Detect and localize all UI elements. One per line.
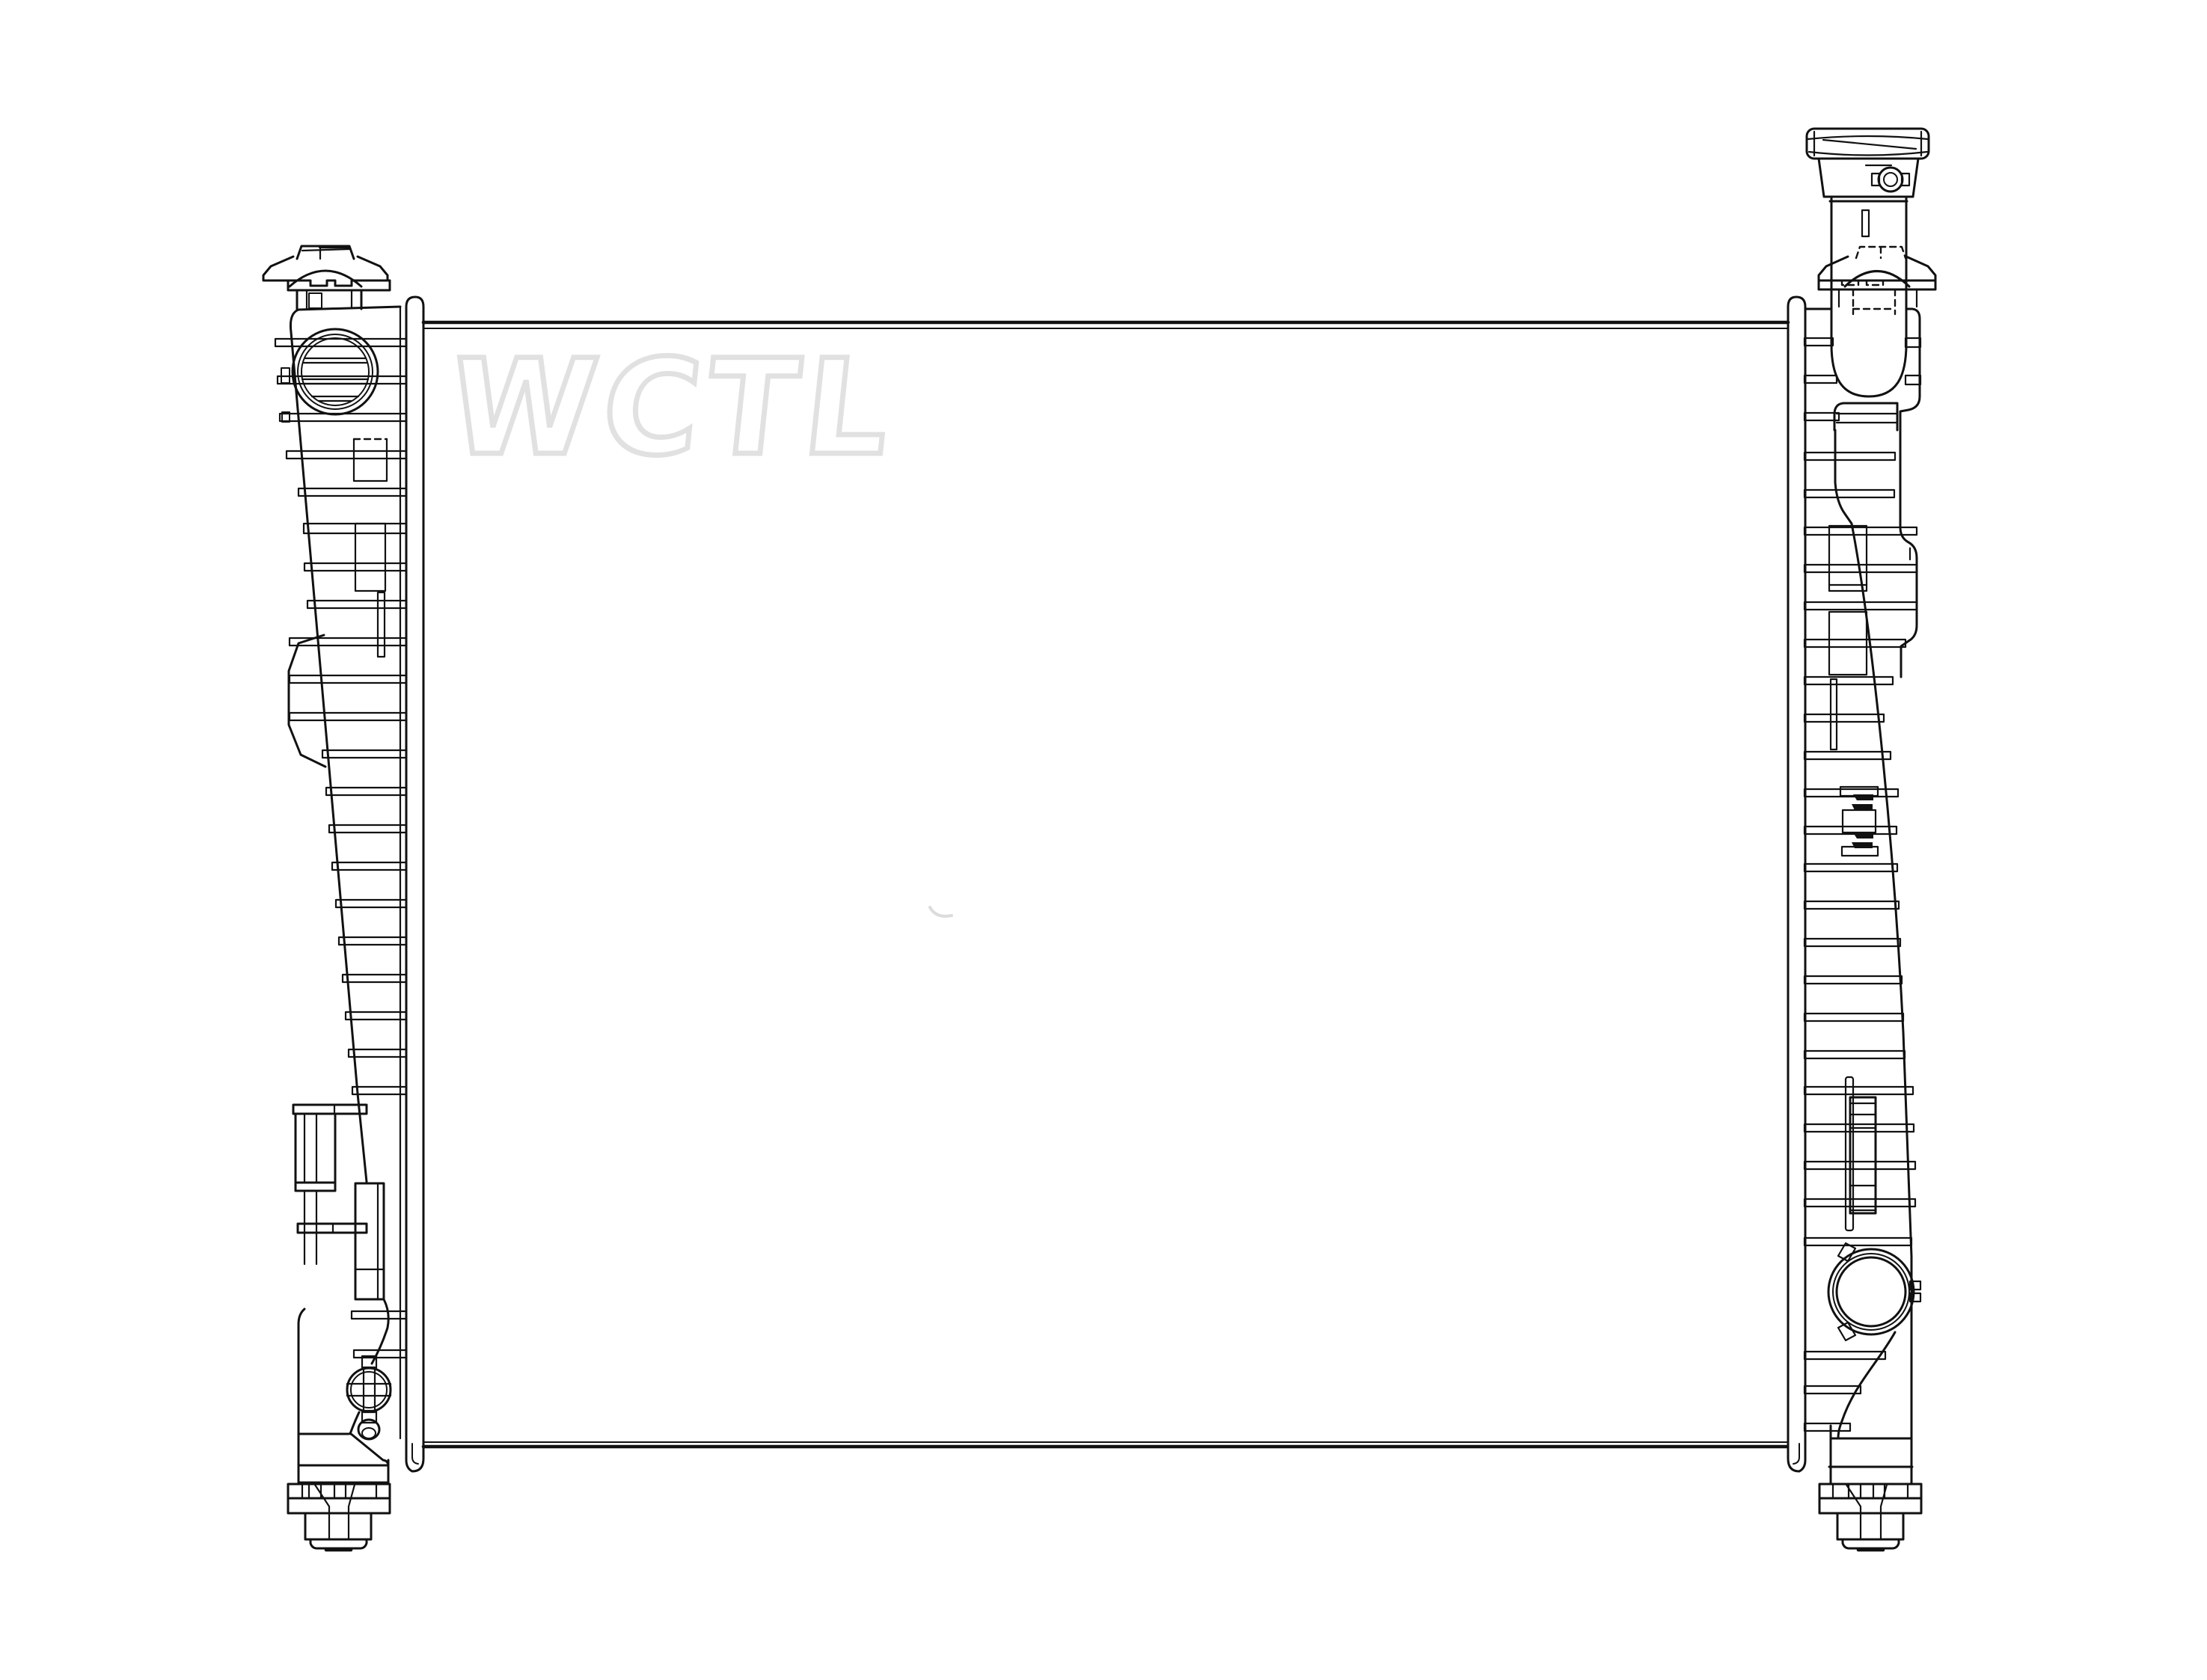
faint-artifact [930, 907, 952, 916]
tank-rib [1805, 453, 1895, 460]
tank-rib [1805, 1386, 1861, 1394]
bracket-wing-right [1906, 257, 1935, 280]
neck-slot [1862, 210, 1869, 236]
tank-rib [1805, 939, 1900, 946]
tank-rib [1805, 1238, 1911, 1245]
bracket-wing-right [358, 257, 388, 280]
support-rod [1846, 1077, 1876, 1230]
bracket-lower-hidden [1853, 289, 1895, 314]
right-tank-rib-nubs [1906, 338, 1920, 384]
left-tank-flange-strip [406, 297, 423, 1471]
left-mounting-foot [288, 1484, 390, 1550]
tank-rib [1805, 1352, 1885, 1359]
bracket-wing-left [1819, 257, 1848, 280]
tank-rib [339, 937, 406, 945]
right-mounting-foot [1819, 1484, 1921, 1550]
tank-rib [326, 788, 406, 795]
tank-rib [332, 862, 406, 870]
neck-collar [1834, 403, 1897, 430]
tank-rib [1805, 1162, 1915, 1169]
tank-rib [322, 750, 406, 758]
tank-rib [352, 1087, 406, 1094]
watermark: WCTL [443, 331, 952, 916]
tank-rib [1906, 375, 1920, 384]
bracket-base-notched [288, 280, 390, 286]
tank-rib [1805, 1087, 1913, 1094]
tank-rib [1805, 752, 1891, 759]
left-tank-face-lower [372, 1299, 388, 1364]
right-face-box-2 [1829, 612, 1867, 675]
left-inlet-port [293, 329, 378, 414]
tank-rib [1805, 1199, 1915, 1207]
tank-rib [346, 1012, 406, 1020]
bracket-pin-hidden [1856, 247, 1906, 258]
petcock-hbar [347, 1384, 391, 1396]
tank-rib [1805, 640, 1906, 647]
port-slats [302, 358, 368, 401]
left-tank-top-edge [290, 307, 400, 332]
tank-rib [343, 975, 406, 982]
bracket-lower-solid [1839, 289, 1917, 307]
tank-rib [1805, 714, 1884, 722]
tank-rib [1805, 375, 1837, 383]
tank-rib [290, 713, 406, 720]
tank-rib [307, 601, 406, 608]
bracket-wing-left [263, 257, 293, 280]
left-neck-detail [309, 293, 322, 308]
left-side-tank [281, 290, 400, 1438]
tank-rib [1805, 976, 1902, 984]
face-bar [378, 592, 385, 657]
tank-rib [287, 451, 406, 459]
tank-rib [1805, 602, 1917, 610]
filler-neck [1831, 198, 1906, 396]
tank-rib [1805, 901, 1899, 909]
left-mounting-bracket [263, 246, 390, 290]
tank-rib [1805, 1423, 1850, 1431]
tank-rib [1805, 338, 1833, 346]
tank-rib [1805, 677, 1893, 684]
watermark-text: WCTL [443, 331, 904, 484]
face-box-a [354, 439, 387, 481]
tank-rib [329, 825, 406, 833]
tank-rib [352, 1311, 406, 1319]
right-outlet-port [1828, 1243, 1920, 1340]
right-bottom-chamber [1829, 1426, 1912, 1484]
tank-rib [349, 1049, 406, 1057]
petcock-vbar [364, 1367, 375, 1412]
overflow-nipple [1879, 168, 1903, 191]
tank-rib [1805, 864, 1897, 871]
tank-rib [290, 675, 406, 683]
radiator-diagram: WCTL [0, 0, 2207, 1680]
tank-rib [275, 339, 406, 346]
drain-nipple-bore [362, 1428, 376, 1438]
tank-rib [1906, 338, 1920, 347]
tank-rib [1805, 490, 1894, 497]
radiator-cap [1807, 129, 1929, 201]
tank-rib [299, 488, 406, 496]
right-tank-flange-strip [1788, 297, 1805, 1471]
tank-rib [1805, 1014, 1903, 1021]
tank-rib [290, 638, 406, 646]
tank-rib [336, 900, 406, 907]
oil-cooler-connector [293, 1105, 384, 1299]
left-tank-ribs [275, 339, 406, 1358]
right-mounting-bracket [1819, 247, 1935, 314]
radiator-core [423, 322, 1788, 1447]
tank-rib [1805, 1051, 1905, 1058]
